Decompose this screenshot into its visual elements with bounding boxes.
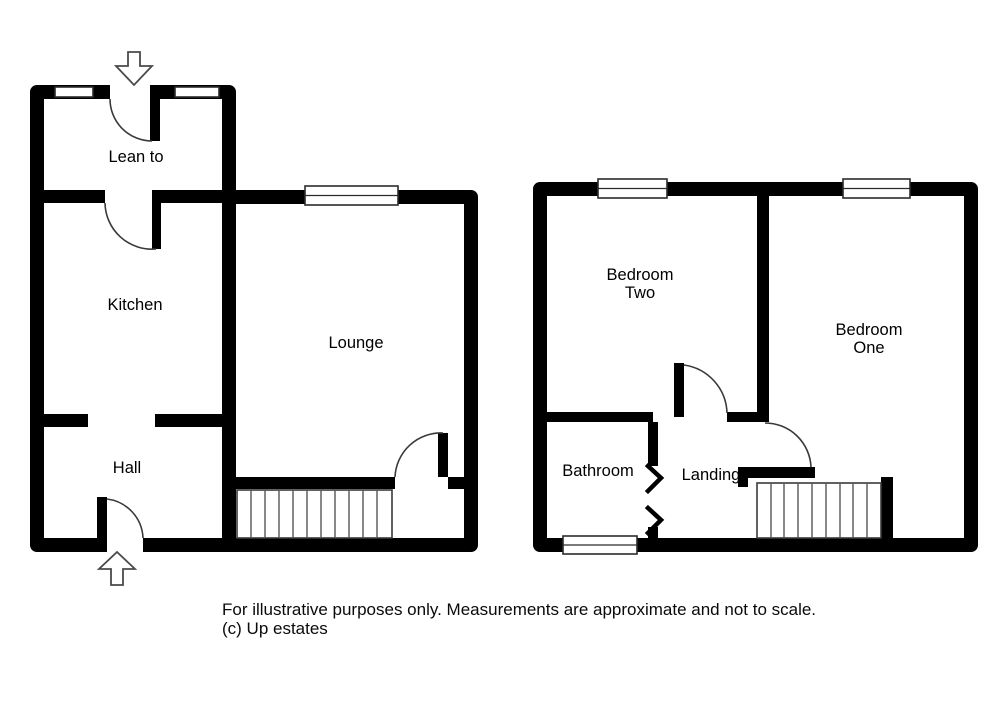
staircase — [757, 483, 881, 538]
door-leaf — [674, 363, 684, 417]
room-label-kitchen: Kitchen — [107, 296, 162, 314]
wall — [222, 99, 236, 552]
wall — [37, 414, 88, 427]
window — [175, 87, 219, 97]
room-label-bedroom-two: Bedroom Two — [607, 266, 674, 302]
door-opening — [110, 83, 150, 101]
wall — [152, 190, 236, 203]
first-floor-outer-wall — [540, 189, 971, 545]
room-label-lean-to: Lean to — [108, 148, 163, 166]
window — [563, 536, 637, 554]
room-label-hall: Hall — [113, 459, 141, 477]
room-label-line: One — [836, 339, 903, 357]
room-label-lounge: Lounge — [328, 334, 383, 352]
window — [305, 186, 398, 205]
wall — [881, 477, 893, 539]
room-label-bedroom-one: Bedroom One — [836, 321, 903, 357]
door-leaf — [97, 497, 107, 538]
door-opening — [107, 535, 143, 554]
room-label-line: Bedroom — [607, 266, 674, 284]
wall — [540, 412, 653, 422]
window — [843, 179, 910, 198]
wall — [236, 477, 395, 489]
wall — [37, 190, 105, 203]
copyright-text: (c) Up estates — [222, 620, 816, 639]
room-label-landing: Landing — [682, 466, 741, 484]
wall — [757, 196, 769, 422]
staircase — [237, 490, 392, 538]
entrance-arrow-down-icon — [116, 52, 152, 85]
door-leaf — [150, 99, 160, 141]
room-label-bathroom: Bathroom — [562, 462, 634, 480]
wall — [648, 422, 658, 466]
wall — [448, 477, 465, 489]
first-floor-plan — [540, 179, 971, 554]
stair-balustrade-wall — [738, 467, 815, 478]
room-label-line: Two — [607, 284, 674, 302]
wall — [155, 414, 236, 427]
floorplan-page: Lean to Kitchen Hall Lounge Bedroom Two … — [0, 0, 1000, 707]
entrance-arrow-up-icon — [99, 552, 135, 585]
ground-floor-plan — [37, 52, 471, 585]
door-leaf — [152, 203, 161, 249]
disclaimer: For illustrative purposes only. Measurem… — [222, 601, 816, 638]
window — [55, 87, 93, 97]
wall — [727, 412, 758, 422]
disclaimer-text: For illustrative purposes only. Measurem… — [222, 601, 816, 620]
room-label-line: Bedroom — [836, 321, 903, 339]
window — [598, 179, 667, 198]
door-leaf — [438, 433, 448, 477]
